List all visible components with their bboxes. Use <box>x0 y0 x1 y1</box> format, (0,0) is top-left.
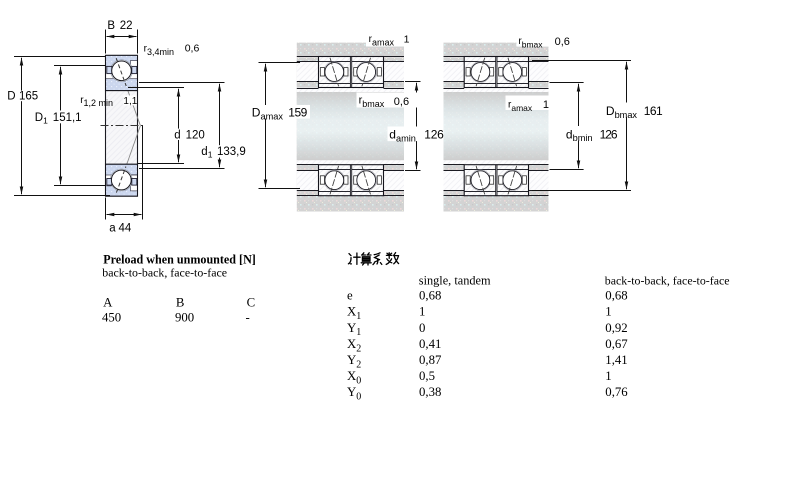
svg-text:Y0: Y0 <box>347 385 361 402</box>
svg-text:0,68: 0,68 <box>605 289 627 303</box>
svg-text:r3,4min0,6: r3,4min0,6 <box>144 42 200 56</box>
svg-text:0,67: 0,67 <box>605 337 628 351</box>
svg-text:1: 1 <box>605 369 611 383</box>
svg-text:1: 1 <box>419 305 425 319</box>
svg-text:B: B <box>176 295 185 309</box>
svg-text:0,68: 0,68 <box>419 289 441 303</box>
svg-text:161: 161 <box>644 104 663 118</box>
svg-text:D1151,1: D1151,1 <box>35 112 82 126</box>
svg-text:X2: X2 <box>347 337 361 354</box>
svg-text:back-to-back, face-to-face: back-to-back, face-to-face <box>605 274 730 288</box>
svg-text:1: 1 <box>605 305 611 319</box>
svg-text:1,1: 1,1 <box>123 96 137 107</box>
svg-text:Y2: Y2 <box>347 353 361 370</box>
svg-text:back-to-back, face-to-face: back-to-back, face-to-face <box>102 266 227 280</box>
svg-text:1: 1 <box>404 34 410 46</box>
svg-text:0,6: 0,6 <box>394 96 409 108</box>
svg-text:0,87: 0,87 <box>419 353 442 367</box>
svg-text:126: 126 <box>600 127 618 141</box>
svg-text:0,5: 0,5 <box>419 369 435 383</box>
svg-text:A: A <box>103 295 113 309</box>
svg-text:D165: D165 <box>7 91 38 103</box>
svg-text:0,6: 0,6 <box>555 36 570 48</box>
svg-text:C: C <box>247 295 256 309</box>
svg-text:0,92: 0,92 <box>605 321 627 335</box>
svg-text:single, tandem: single, tandem <box>419 274 491 288</box>
svg-text:159: 159 <box>288 105 307 119</box>
svg-text:X1: X1 <box>347 305 361 322</box>
svg-text:0,76: 0,76 <box>605 385 628 399</box>
svg-text:1: 1 <box>543 99 549 111</box>
svg-text:0,41: 0,41 <box>419 337 441 351</box>
svg-text:126: 126 <box>424 127 444 141</box>
svg-text:0,38: 0,38 <box>419 385 441 399</box>
svg-text:Y1: Y1 <box>347 321 361 338</box>
svg-text:e: e <box>347 289 353 303</box>
svg-text:B22: B22 <box>107 20 132 32</box>
svg-text:0: 0 <box>419 321 425 335</box>
svg-text:d120: d120 <box>174 129 204 141</box>
svg-text:-: - <box>246 311 250 325</box>
svg-text:a44: a44 <box>109 223 132 235</box>
svg-text:900: 900 <box>175 311 194 325</box>
svg-text:X0: X0 <box>347 369 361 386</box>
svg-text:1,41: 1,41 <box>605 353 627 367</box>
svg-text:450: 450 <box>102 311 121 325</box>
svg-text:Preload when unmounted [N]: Preload when unmounted [N] <box>103 253 256 267</box>
